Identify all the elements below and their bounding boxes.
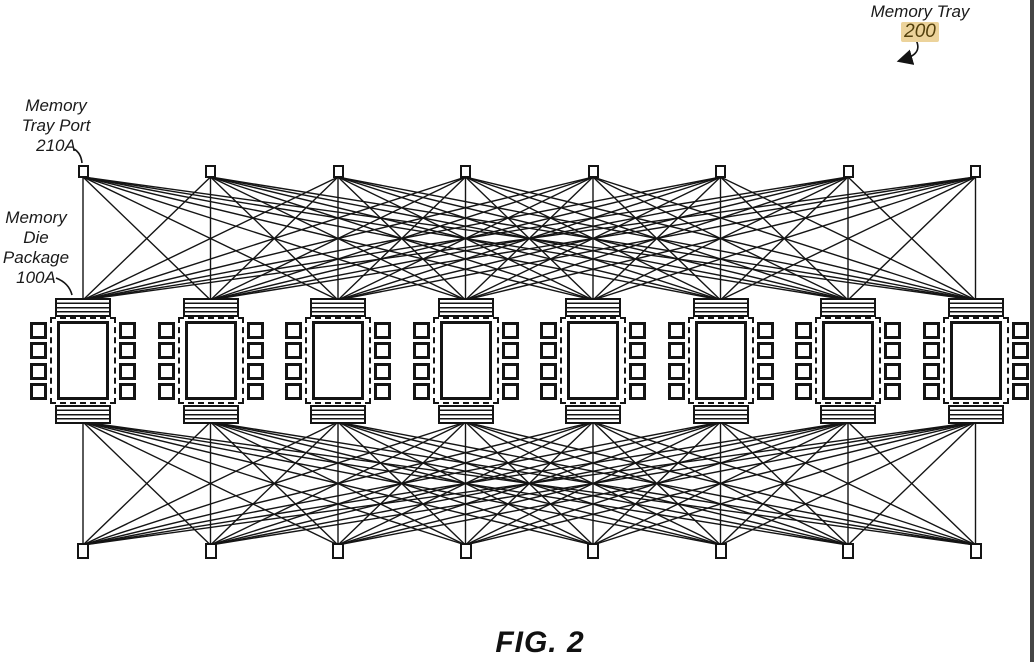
package-pin-left — [285, 322, 302, 339]
package-pin-right — [374, 363, 391, 380]
package-pin-right — [502, 322, 519, 339]
package-pin-right — [884, 383, 901, 400]
memory-tray-port-top-4 — [460, 165, 471, 178]
package-pin-right — [119, 383, 136, 400]
memory-tray-ref: 200 — [901, 22, 939, 42]
package-die — [695, 321, 747, 400]
die-package-label-line3: Package — [0, 248, 72, 268]
package-top-pads — [55, 298, 111, 317]
package-bottom-pads — [693, 405, 749, 424]
package-pin-left — [923, 342, 940, 359]
package-top-pads — [948, 298, 1004, 317]
package-bottom-pads — [565, 405, 621, 424]
package-pin-left — [30, 322, 47, 339]
package-pin-left — [158, 383, 175, 400]
package-bottom-pads — [183, 405, 239, 424]
tray-port-label-line2: Tray Port — [4, 116, 108, 136]
memory-die-package-8 — [923, 298, 1029, 424]
package-pin-left — [668, 322, 685, 339]
package-pin-left — [413, 383, 430, 400]
package-pin-right — [247, 342, 264, 359]
package-pin-right — [884, 322, 901, 339]
memory-die-package-2 — [158, 298, 264, 424]
package-top-pads — [183, 298, 239, 317]
package-pin-right — [247, 322, 264, 339]
package-pin-right — [757, 342, 774, 359]
memory-tray-port-top-2 — [205, 165, 216, 178]
memory-die-package-5 — [540, 298, 646, 424]
memory-tray-port-top-3 — [333, 165, 344, 178]
memory-die-package-1 — [30, 298, 136, 424]
package-pin-left — [923, 383, 940, 400]
package-pin-right — [374, 383, 391, 400]
memory-tray-port-bottom-2 — [205, 543, 217, 559]
memory-tray-port-bottom-3 — [332, 543, 344, 559]
package-pin-right — [629, 383, 646, 400]
memory-tray-port-top-5 — [588, 165, 599, 178]
package-pin-right — [502, 363, 519, 380]
patent-figure-page: Memory Tray 200 Memory Tray Port 210A Me… — [0, 0, 1036, 662]
die-package-ref: 100A — [0, 268, 72, 288]
memory-tray-port-bottom-6 — [715, 543, 727, 559]
package-pin-right — [247, 383, 264, 400]
package-pin-left — [413, 322, 430, 339]
figure-caption: FIG. 2 — [420, 626, 660, 660]
package-pin-right — [119, 322, 136, 339]
memory-tray-port-label: Memory Tray Port 210A — [4, 96, 108, 156]
package-pin-left — [158, 322, 175, 339]
package-pin-left — [413, 342, 430, 359]
package-pin-left — [540, 342, 557, 359]
memory-tray-port-bottom-5 — [587, 543, 599, 559]
package-pin-right — [1012, 383, 1029, 400]
package-pin-right — [629, 342, 646, 359]
memory-tray-port-top-6 — [715, 165, 726, 178]
package-pin-right — [1012, 342, 1029, 359]
package-pin-left — [795, 363, 812, 380]
package-bottom-pads — [55, 405, 111, 424]
package-pin-right — [247, 363, 264, 380]
die-package-label-line2: Die — [0, 228, 72, 248]
memory-tray-port-bottom-4 — [460, 543, 472, 559]
package-die — [440, 321, 492, 400]
package-pin-left — [158, 363, 175, 380]
memory-die-package-7 — [795, 298, 901, 424]
package-bottom-pads — [438, 405, 494, 424]
package-pin-left — [795, 342, 812, 359]
package-die — [822, 321, 874, 400]
memory-die-package-3 — [285, 298, 391, 424]
package-pin-left — [668, 342, 685, 359]
package-pin-right — [374, 322, 391, 339]
memory-tray-port-top-8 — [970, 165, 981, 178]
package-pin-left — [923, 363, 940, 380]
package-pin-right — [757, 322, 774, 339]
memory-tray-port-top-1 — [78, 165, 89, 178]
package-pin-left — [795, 383, 812, 400]
package-pin-left — [30, 342, 47, 359]
package-pin-left — [795, 322, 812, 339]
memory-tray-diagram — [0, 0, 1036, 662]
package-pin-right — [884, 342, 901, 359]
package-top-pads — [820, 298, 876, 317]
package-pin-left — [285, 363, 302, 380]
package-bottom-pads — [820, 405, 876, 424]
package-pin-left — [413, 363, 430, 380]
tray-port-label-line1: Memory — [4, 96, 108, 116]
package-pin-right — [1012, 363, 1029, 380]
package-top-pads — [693, 298, 749, 317]
package-die — [57, 321, 109, 400]
package-pin-left — [285, 342, 302, 359]
tray-port-ref: 210A — [4, 136, 108, 156]
package-pin-right — [757, 363, 774, 380]
memory-tray-label: Memory Tray 200 — [858, 2, 982, 42]
package-pin-right — [119, 342, 136, 359]
package-pin-right — [502, 342, 519, 359]
package-pin-left — [668, 363, 685, 380]
package-die — [567, 321, 619, 400]
package-pin-right — [884, 363, 901, 380]
memory-tray-title: Memory Tray — [858, 2, 982, 22]
package-pin-right — [502, 383, 519, 400]
package-pin-left — [668, 383, 685, 400]
package-top-pads — [310, 298, 366, 317]
package-bottom-pads — [310, 405, 366, 424]
package-die — [312, 321, 364, 400]
package-pin-left — [30, 363, 47, 380]
package-pin-left — [285, 383, 302, 400]
package-bottom-pads — [948, 405, 1004, 424]
package-pin-right — [119, 363, 136, 380]
package-top-pads — [565, 298, 621, 317]
package-pin-left — [540, 363, 557, 380]
memory-tray-port-bottom-1 — [77, 543, 89, 559]
package-pin-right — [629, 363, 646, 380]
memory-tray-port-bottom-7 — [842, 543, 854, 559]
package-pin-right — [374, 342, 391, 359]
package-pin-left — [158, 342, 175, 359]
die-package-label-line1: Memory — [0, 208, 72, 228]
memory-die-package-6 — [668, 298, 774, 424]
memory-die-package-4 — [413, 298, 519, 424]
package-die — [950, 321, 1002, 400]
scan-border-right — [1030, 0, 1034, 662]
package-top-pads — [438, 298, 494, 317]
package-pin-left — [30, 383, 47, 400]
memory-die-package-label: Memory Die Package 100A — [0, 208, 72, 288]
package-pin-right — [629, 322, 646, 339]
package-pin-left — [923, 322, 940, 339]
package-pin-left — [540, 322, 557, 339]
memory-tray-port-top-7 — [843, 165, 854, 178]
package-pin-right — [757, 383, 774, 400]
memory-tray-port-bottom-8 — [970, 543, 982, 559]
package-pin-left — [540, 383, 557, 400]
package-pin-right — [1012, 322, 1029, 339]
package-die — [185, 321, 237, 400]
